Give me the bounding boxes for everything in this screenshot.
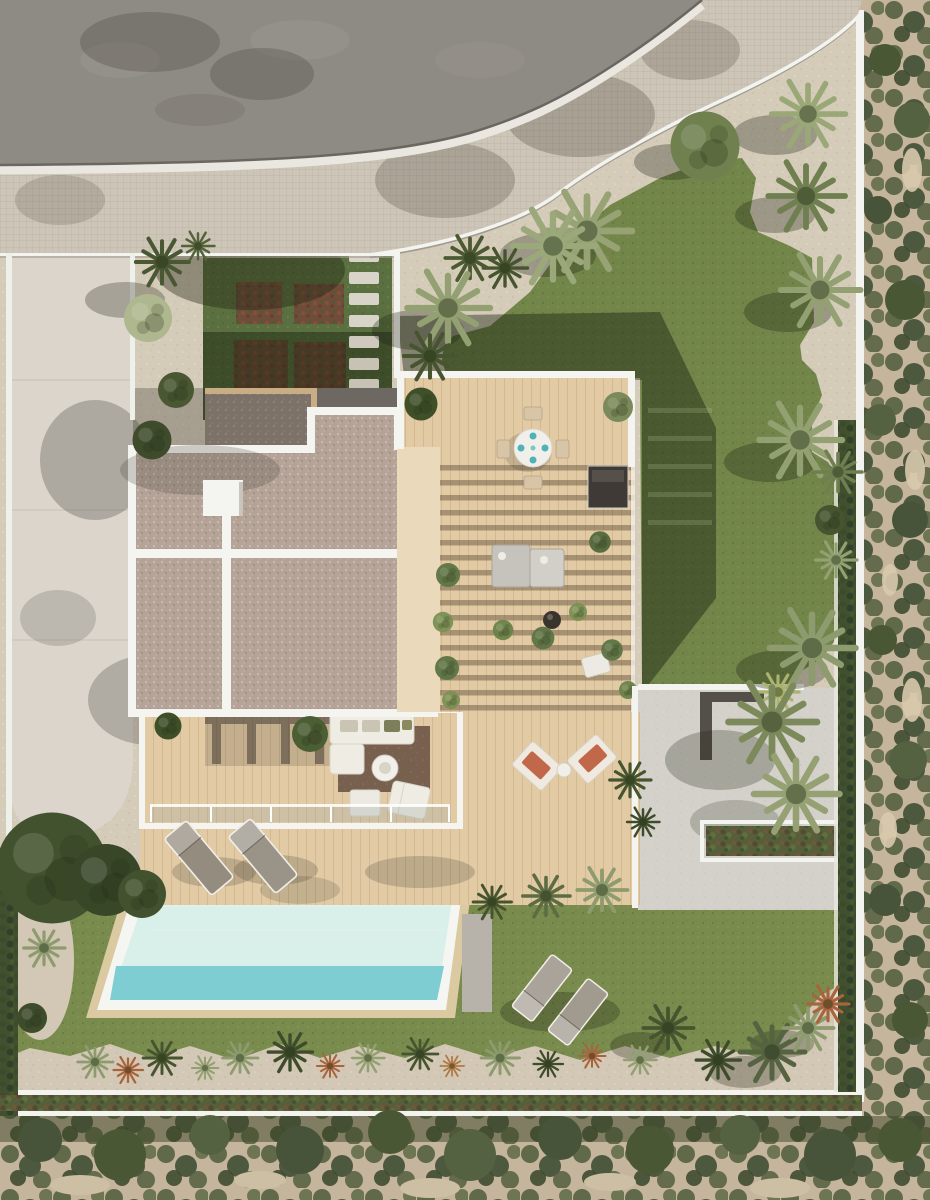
deck-parapet [397,371,404,449]
roof-chimney [203,480,243,516]
roof-divider [136,549,430,558]
scrub-bush [869,44,901,76]
dining-chair [556,440,569,458]
round-bush [815,505,845,535]
round-bush [124,294,172,342]
sand-patch [905,450,925,490]
pergola-post-shadow [247,724,256,764]
balustrade-post [448,806,450,822]
sand-patch [400,1178,460,1198]
balustrade-post [150,806,152,822]
asphalt-patch [155,94,245,126]
tree-shadow [80,12,220,72]
potted-plant [603,392,633,422]
side-table [557,763,571,777]
sand-patch [902,678,922,722]
scrub-bush [444,1129,496,1181]
scrub-bush [190,1115,230,1155]
sand-patch [234,1171,286,1189]
potted-plant [405,388,438,421]
balustrade-rail [150,804,450,807]
dining-chair [497,440,510,458]
scrub-bush [889,741,927,779]
dining-deck [397,371,637,712]
center-bowl [531,446,536,451]
round-bush [17,1003,47,1033]
scrub-bush [276,1126,324,1174]
outdoor-grill [588,466,628,508]
palm-shadow [365,856,475,888]
annex-parapet [205,388,317,394]
sand-patch [50,1175,110,1195]
deck-parapet [397,371,635,378]
table-setting [518,445,525,452]
right-boundary-wall [856,10,864,1102]
scrub-bush [878,1118,922,1162]
pergola-post-shadow [212,724,221,764]
chimney-shadow [239,482,243,516]
round-bush [133,421,172,460]
deck-edge [631,467,635,712]
scrub-bush [892,502,928,538]
olive-tree [118,870,166,918]
potted-plant [155,713,182,740]
scrub-bush [720,1115,760,1155]
scrub-bush [869,884,901,916]
tree-shadow [210,48,314,100]
pergola-post-shadow [281,724,290,764]
pool-deep-end [110,966,444,1000]
table-setting [542,445,549,452]
site-plan-render [0,0,930,1200]
scrub-bush [864,196,892,224]
potted-plant [292,716,328,752]
round-tree [671,112,740,181]
scrub-bush [892,1002,928,1038]
balustrade-post [390,806,392,822]
table-setting [530,457,537,464]
scrub-bush [804,1129,856,1181]
tree-shadow [15,175,105,225]
tree-shadow [20,590,96,646]
scrub-bush [18,1118,62,1162]
roof-divider [222,558,231,709]
equipment-pad [462,914,492,1012]
driveway-concrete [8,255,133,840]
deck-walkway [397,447,440,712]
asphalt-patch [435,42,525,78]
scrub-bush [885,280,925,320]
sand-patch [750,1178,810,1198]
roof-divider [222,514,231,551]
table-setting [530,433,537,440]
balustrade-post [270,806,272,822]
deck-patio-wall [632,686,638,908]
dining-chair [524,476,542,489]
aerial-site-plan [0,0,930,1200]
glass-balustrade [150,806,450,822]
scrub-bush [94,1129,146,1181]
round-bush [158,372,194,408]
sand-patch [879,812,897,848]
scrub-bush [867,625,897,655]
bottom-planter-wall [0,1090,862,1095]
scrub-bush [538,1116,582,1160]
dining-chair [524,407,542,420]
annex-roof-texture [205,388,317,448]
bottom-boundary-wall [0,1111,862,1116]
deck-parapet [628,371,635,467]
coffee-table-tray [379,762,391,774]
sand-patch [584,1173,636,1191]
sand-patch [882,564,898,596]
scrub-bush [368,1110,412,1154]
balustrade-post [210,806,212,822]
scrub-bush [864,404,896,436]
side-table [543,611,561,629]
sand-patch [902,148,922,192]
scrub-bush [626,1126,674,1174]
left-boundary-wall [6,253,12,838]
bottom-planter-shrubs [0,1095,862,1111]
scrub-bush [894,102,930,138]
balustrade-post [330,806,332,822]
